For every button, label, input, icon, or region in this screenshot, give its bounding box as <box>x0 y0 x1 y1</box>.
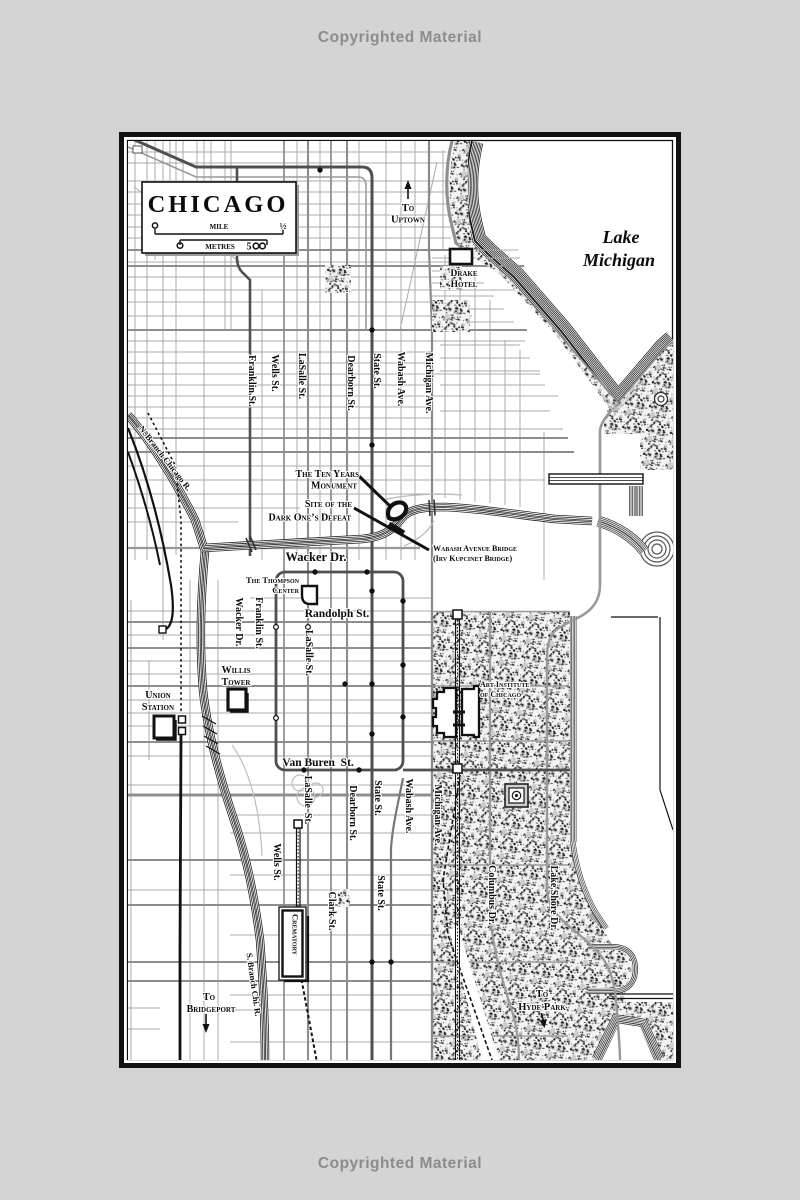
svg-text:Franklin St.: Franklin St. <box>253 597 264 649</box>
svg-text:To: To <box>402 203 415 214</box>
svg-text:Michigan: Michigan <box>582 250 655 270</box>
svg-text:Wabash Avenue Bridge: Wabash Avenue Bridge <box>433 544 517 553</box>
svg-text:The Thompson: The Thompson <box>246 575 300 585</box>
svg-text:Crematory: Crematory <box>291 914 301 956</box>
svg-text:Hyde Park: Hyde Park <box>518 1002 566 1013</box>
svg-text:Michigan Ave.: Michigan Ave. <box>432 785 443 846</box>
svg-text:State St.: State St. <box>375 875 386 911</box>
svg-text:CHICAGO: CHICAGO <box>148 191 289 218</box>
svg-text:Lake: Lake <box>602 227 640 247</box>
svg-text:Wabash Ave.: Wabash Ave. <box>395 352 406 407</box>
svg-text:Dearborn St.: Dearborn St. <box>347 785 358 841</box>
svg-text:Wacker Dr.: Wacker Dr. <box>233 598 244 647</box>
svg-text:Hotel: Hotel <box>451 280 478 290</box>
svg-text:Wells St.: Wells St. <box>271 843 282 881</box>
svg-text:Wabash Ave.: Wabash Ave. <box>403 779 414 834</box>
svg-text:The Ten Years: The Ten Years <box>295 469 359 480</box>
svg-text:To: To <box>203 992 216 1003</box>
svg-text:METRES: METRES <box>205 243 235 251</box>
svg-text:Lake Shore Dr.: Lake Shore Dr. <box>548 866 559 931</box>
svg-text:Columbus Dr.: Columbus Dr. <box>486 865 497 925</box>
svg-text:Monument: Monument <box>311 481 357 492</box>
svg-text:LaSalle St.: LaSalle St. <box>303 630 314 677</box>
svg-text:Michigan Ave.: Michigan Ave. <box>423 353 434 414</box>
svg-text:State St.: State St. <box>371 353 382 389</box>
svg-text:Art Institute: Art Institute <box>480 680 529 689</box>
svg-text:Uptown: Uptown <box>391 215 425 226</box>
svg-text:Franklin St.: Franklin St. <box>246 355 257 407</box>
svg-text:Site of the: Site of the <box>305 499 352 510</box>
svg-text:To: To <box>536 989 549 1000</box>
svg-text:Wells St.: Wells St. <box>269 354 280 392</box>
svg-text:½: ½ <box>280 221 287 231</box>
svg-text:Dark One’s Defeat: Dark One’s Defeat <box>268 513 351 524</box>
svg-text:MILE: MILE <box>210 223 229 231</box>
svg-text:LaSalle St.: LaSalle St. <box>296 353 307 400</box>
svg-text:Bridgeport: Bridgeport <box>187 1004 236 1015</box>
svg-text:Willis: Willis <box>222 665 251 676</box>
svg-text:Tower: Tower <box>222 677 252 688</box>
svg-text:Union: Union <box>145 690 171 701</box>
svg-text:LaSalle St.: LaSalle St. <box>302 776 313 825</box>
svg-text:Drake: Drake <box>450 269 477 279</box>
svg-text:Center: Center <box>272 585 299 595</box>
svg-text:State St.: State St. <box>372 780 383 816</box>
svg-text:Randolph St.: Randolph St. <box>305 608 370 620</box>
svg-text:5: 5 <box>247 242 252 253</box>
svg-text:Wacker Dr.: Wacker Dr. <box>285 550 346 564</box>
svg-text:Dearborn St.: Dearborn St. <box>345 355 356 411</box>
svg-text:Copyrighted Material: Copyrighted Material <box>318 1155 482 1172</box>
svg-text:of Chicago: of Chicago <box>480 690 521 699</box>
svg-text:Copyrighted Material: Copyrighted Material <box>318 29 482 46</box>
svg-text:Van Buren St.: Van Buren St. <box>282 757 354 769</box>
svg-text:(Irv Kupcinet Bridge): (Irv Kupcinet Bridge) <box>433 554 512 563</box>
svg-text:Station: Station <box>142 702 174 713</box>
svg-text:Clark St.: Clark St. <box>326 892 337 931</box>
